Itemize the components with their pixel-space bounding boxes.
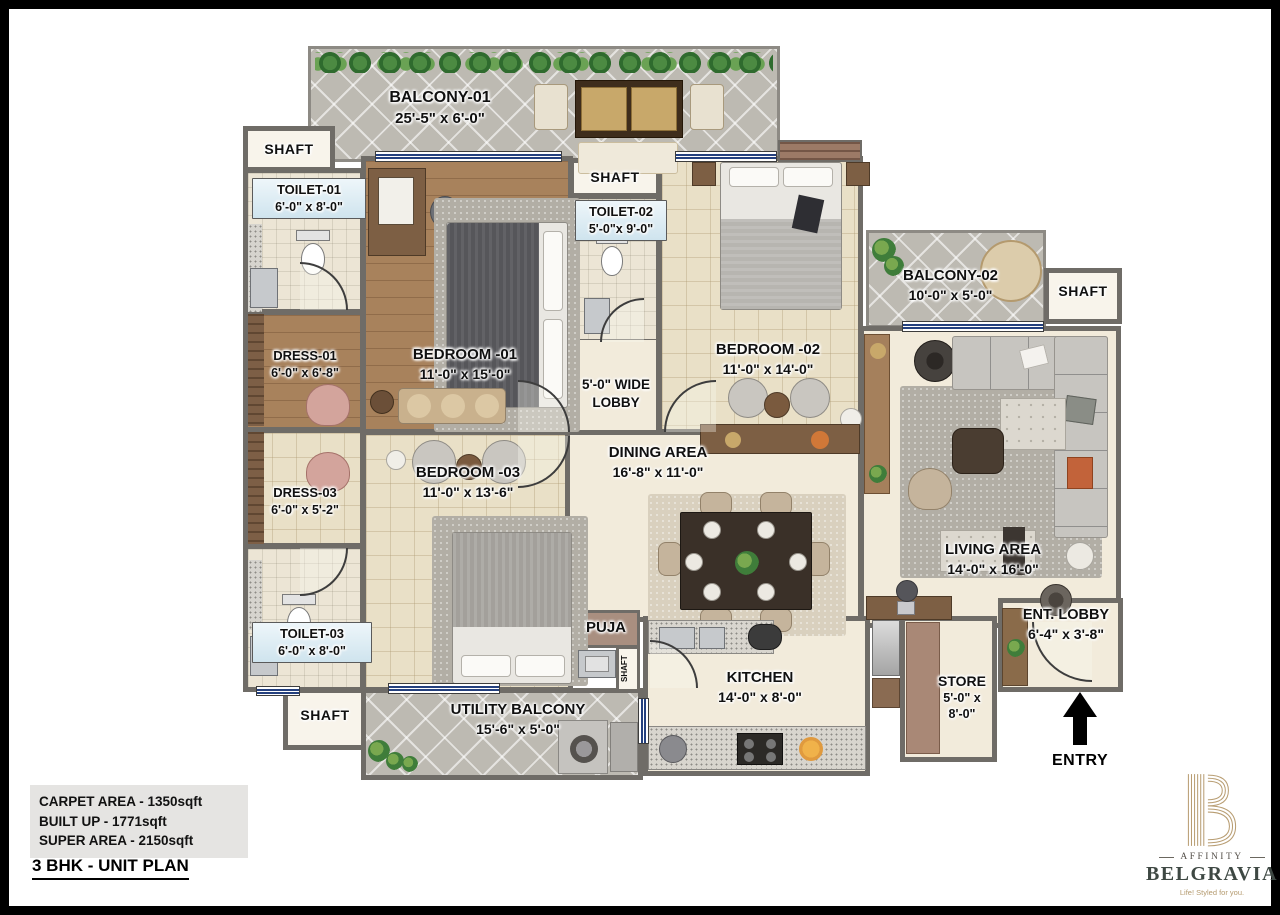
bedroom02-bed [720,162,842,310]
kitchen-sink [699,627,725,649]
planter-greens [315,52,773,73]
settee-cushion [475,394,499,418]
bed-pillow [783,167,833,187]
bedroom02-chair [790,378,830,418]
belgravia-monogram-icon [1180,770,1244,850]
ent-lobby-label: ENT. LOBBY 6'-4" x 3'-8" [1012,606,1120,643]
dash-left [1159,857,1174,858]
dining-chair [658,542,682,576]
bedroom03-label: BEDROOM -03 11'-0" x 13'-6" [378,463,558,501]
living-round-chair [914,340,956,382]
toilet01-wc-tank [296,230,330,241]
bedroom02-label: BEDROOM -02 11'-0" x 14'-0" [688,340,848,378]
toilet03-ledge [248,560,262,630]
shaft-right-label: SHAFT [1044,282,1122,300]
toilet01-label: TOILET-01 6'-0" x 8'-0" [252,178,366,219]
bedroom02-nightstand [846,162,870,186]
bedroom03-bed [452,532,572,684]
burner [744,739,754,749]
shaft-bottom-left-label: SHAFT [283,706,367,724]
burner [766,752,776,762]
kitchen-label: KITCHEN 14'-0" x 8'-0" [690,668,830,706]
living-console-unit [864,334,890,494]
window-utility [638,698,649,744]
living-tufted-bench [1000,398,1066,450]
fruit-bowl [799,737,823,761]
shaft-top-middle-label: SHAFT [569,168,661,186]
plant [869,465,887,483]
balcony01-chair-right [690,84,724,130]
carpet-area: CARPET AREA - 1350sqft [39,792,239,812]
dash-right [1250,857,1265,858]
lobby-label: 5'-0" WIDE LOBBY [570,376,662,411]
fridge [872,620,900,676]
entry-label: ENTRY [1052,752,1108,770]
sofa-pillow [1063,395,1096,425]
window-bedroom-02 [675,151,777,162]
dining-table [680,512,812,610]
bedroom01-side-table [370,390,394,414]
sofa-pillow [1019,344,1049,370]
brand-tagline: Life! Styled for you. [1180,888,1244,897]
living-label: LIVING AREA 14'-0" x 16'-0" [888,540,1098,578]
settee-cushion [441,394,465,418]
living-armchair [908,468,952,510]
bed-pillow [515,655,565,677]
bed-pillow [543,231,563,311]
plate [703,583,721,601]
sofa-pillow [1067,457,1093,489]
dress01-chair [306,384,350,426]
bed-pillow [461,655,511,677]
dress03-label: DRESS-03 6'-0" x 5'-2" [250,485,360,518]
toilet03-wc-tank [282,594,316,605]
brand-prefix: AFFINITY [1180,852,1243,862]
brand-logo: AFFINITY BELGRAVIA Life! Styled for you. [1146,770,1278,897]
sofa-cushion [631,87,677,131]
stove [737,733,783,765]
dress01-label: DRESS-01 6'-0" x 6'-8" [250,348,360,381]
brand-prefix-row: AFFINITY [1159,852,1264,862]
super-area: SUPER AREA - 2150sqft [39,831,239,851]
bedroom02-nightstand [692,162,716,186]
bed-pillow [729,167,779,187]
kitchen-faucet-unit [748,624,782,650]
window-living [902,321,1044,332]
built-up-area: BUILT UP - 1771sqft [39,812,239,832]
ac-ledge [778,140,862,162]
brand-name: BELGRAVIA [1146,863,1278,886]
lamp [870,343,886,359]
bedroom01-settee [398,388,506,424]
puja-sink [578,650,616,678]
balcony01-sofa [575,80,683,138]
balcony01-chair-left [534,84,568,130]
bed-blanket [721,219,841,309]
puja-label: PUJA [572,618,640,638]
window-toilet-03 [256,686,300,696]
balcony01-label: BALCONY-01 25'-5" x 6'-0" [355,88,525,128]
bed-blanket [453,533,571,627]
burner [766,739,776,749]
kitchen-cabinet [872,678,900,708]
entry-arrow-stem [1073,715,1087,745]
shaft-kitchen-label: SHAFT [620,650,636,688]
plate [757,583,775,601]
desk-chair [896,580,918,602]
utility-label: UTILITY BALCONY 15'-6" x 5'-0" [408,700,628,738]
plate [757,521,775,539]
floor-plan: BALCONY-01 25'-5" x 6'-0" SHAFT TOILET-0… [0,0,1280,915]
store-label: STORE 5'-0" x 8'-0" [928,672,996,723]
utility-plant [402,756,418,772]
burner [744,752,754,762]
area-summary: CARPET AREA - 1350sqft BUILT UP - 1771sq… [30,785,248,858]
bedroom01-dresser [368,168,426,256]
bedroom02-round-table [764,392,790,418]
plate [789,553,807,571]
bedroom01-label: BEDROOM -01 11'-0" x 15'-0" [375,345,555,383]
plate [703,521,721,539]
shaft-top-left-label: SHAFT [243,140,335,158]
centerpiece-plant [735,551,759,575]
laptop [897,601,915,615]
bedroom02-chair [728,378,768,418]
console-decor [811,431,829,449]
entry-arrow-icon [1063,692,1097,717]
window-bedroom-01 [375,151,562,162]
settee-cushion [407,394,431,418]
coffee-maker [659,735,687,763]
washer-door [570,735,598,763]
toilet03-label: TOILET-03 6'-0" x 8'-0" [252,622,372,663]
dresser-mirror [378,177,414,225]
plan-title: 3 BHK - UNIT PLAN [32,856,189,880]
kitchen-counter-bottom [648,726,866,770]
toilet01-basin [250,268,278,308]
plate [685,553,703,571]
sink-basin [585,656,609,672]
balcony02-label: BALCONY-02 10'-0" x 5'-0" [878,266,1023,304]
toilet02-label: TOILET-02 5'-0"x 9'-0" [575,200,667,241]
window-bedroom-03 [388,683,500,694]
living-ottoman [952,428,1004,474]
toilet02-wc [601,246,623,276]
sofa-cushion [581,87,627,131]
dining-label: DINING AREA 16'-8" x 11'-0" [578,443,738,481]
